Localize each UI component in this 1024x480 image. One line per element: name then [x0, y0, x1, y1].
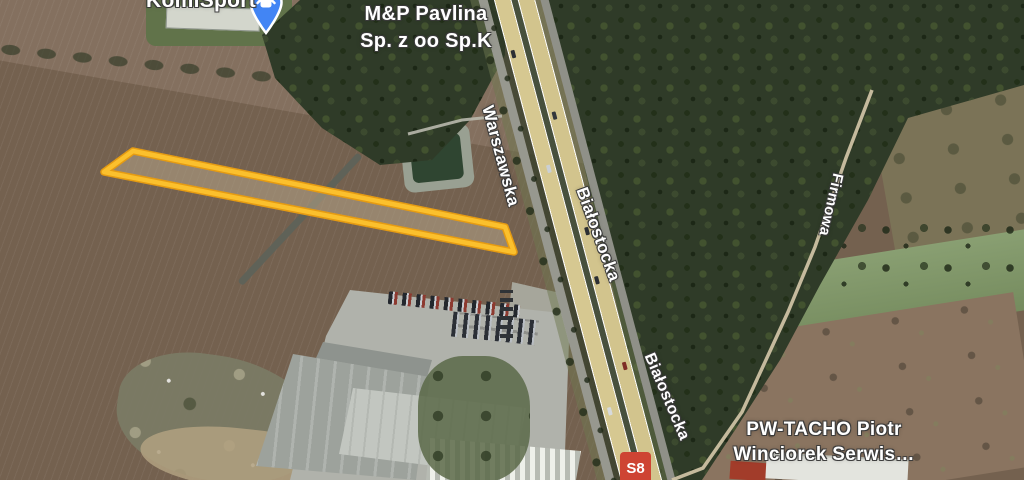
- business-label-line: Sp. z oo Sp.K: [338, 28, 514, 55]
- route-badge-s8[interactable]: S8: [620, 452, 651, 480]
- parcel-highlight-fill: [104, 151, 514, 252]
- business-label-pw-tacho[interactable]: PW-TACHO Piotr Winciorek Serwis…: [732, 417, 916, 468]
- map-overlays: [0, 0, 1024, 480]
- business-label-mp-pavlina[interactable]: M&P Pavlina Sp. z oo Sp.K: [338, 1, 514, 55]
- business-label-line: PW-TACHO Piotr: [732, 417, 916, 442]
- satellite-map[interactable]: KomiSport M&P Pavlina Sp. z oo Sp.K Wars…: [0, 0, 1024, 480]
- business-label-komisport[interactable]: KomiSport: [146, 0, 256, 13]
- business-label-line: M&P Pavlina: [338, 1, 514, 28]
- business-label-line: Winciorek Serwis…: [732, 442, 916, 467]
